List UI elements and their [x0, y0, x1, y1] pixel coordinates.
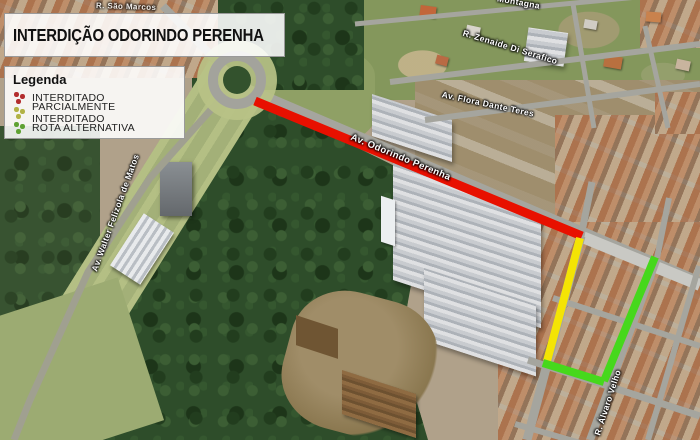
route-segment-parcialmente-interditado	[547, 238, 580, 361]
yellow-dots-icon	[13, 106, 26, 119]
legend: Legenda INTERDITADO PARCIALMENTE INTERDI…	[4, 66, 185, 139]
route-segment-rota-alternativa-leste	[604, 257, 655, 381]
legend-item-parcialmente-interditado: PARCIALMENTE INTERDITADO	[13, 105, 176, 120]
map-canvas: R. São Marcos Montagna R. Zenaide Di Ser…	[0, 0, 700, 440]
red-dots-icon	[13, 91, 26, 104]
map-title-box: INTERDIÇÃO ODORINDO PERENHA	[4, 13, 285, 57]
page-title: INTERDIÇÃO ODORINDO PERENHA	[13, 25, 264, 46]
green-dots-icon	[13, 121, 26, 134]
route-segment-rota-alternativa-sul	[543, 363, 604, 382]
legend-item-label: ROTA ALTERNATIVA	[32, 122, 135, 134]
legend-title: Legenda	[13, 72, 176, 87]
